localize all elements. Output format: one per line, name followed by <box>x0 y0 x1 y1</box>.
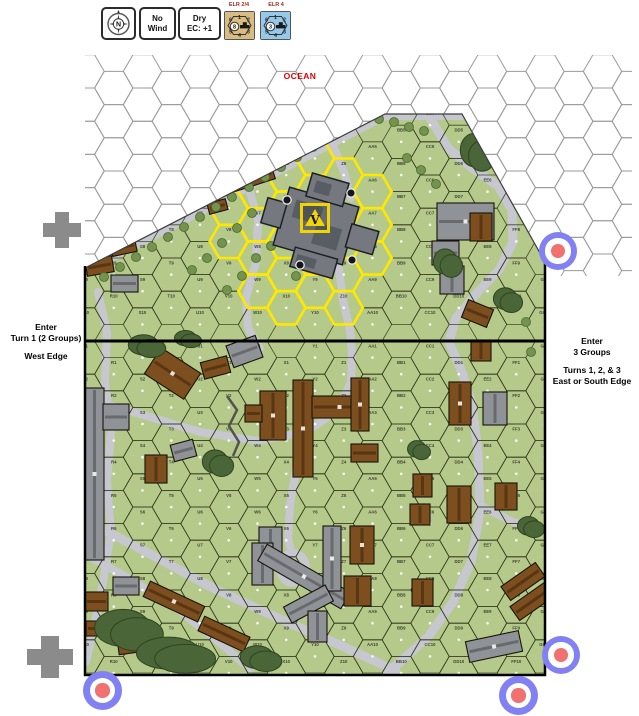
west-entry-line2: Turn 1 (2 Groups) <box>0 333 92 344</box>
cross-horizontal-bar <box>27 649 73 665</box>
orchard-tree <box>248 209 257 218</box>
allied-roundel-marker[interactable] <box>499 676 538 715</box>
elr-counter-allied[interactable]: 6125433 <box>260 11 291 40</box>
wooden-building <box>351 444 378 462</box>
orchard-tree <box>432 180 441 189</box>
hex-label: X9 <box>284 626 290 631</box>
gun-cupola <box>348 256 356 264</box>
hex-label: W8 <box>254 244 261 249</box>
hex-label: FF3 <box>512 426 520 431</box>
hex-label: EE9 <box>483 609 492 614</box>
hex-label: CC1 <box>426 343 435 348</box>
hex-label: DD10 <box>453 659 465 664</box>
hex-label: T5 <box>169 493 175 498</box>
svg-text:6: 6 <box>229 18 232 24</box>
hex-label: T8 <box>169 227 175 232</box>
hex-label: T9 <box>169 260 175 265</box>
hex-label: BB4 <box>397 460 406 465</box>
stone-building <box>113 577 139 595</box>
wooden-building <box>413 474 432 497</box>
german-cross-marker[interactable] <box>43 212 81 248</box>
hex-label: AA5 <box>368 476 377 481</box>
wooden-building <box>351 378 369 431</box>
hex-label: S10 <box>139 310 147 315</box>
hex-label: S6 <box>140 509 146 514</box>
hex-label: EE8 <box>483 244 492 249</box>
hex-label: U6 <box>197 509 203 514</box>
hex-label: BB7 <box>397 559 406 564</box>
svg-text:6: 6 <box>265 18 268 24</box>
hex-label: W6 <box>254 509 261 514</box>
hex-label: T9 <box>169 626 175 631</box>
svg-text:1: 1 <box>274 15 277 21</box>
hex-label: FF10 <box>511 659 522 664</box>
orchard-tree <box>223 286 232 295</box>
hex-label: X6 <box>284 526 290 531</box>
allied-roundel-marker[interactable] <box>539 232 577 270</box>
west-entry-instructions: Enter Turn 1 (2 Groups) West Edge <box>0 322 92 362</box>
hex-label: Z1 <box>341 360 347 365</box>
stone-building <box>308 611 327 642</box>
hex-label: X1 <box>284 360 290 365</box>
scenario-map-page: Q1Q2Q3Q4Q5Q6Q7Q8Q9Q10Q10Q9R1R2R3R4R5R6R7… <box>0 0 639 716</box>
hex-label: FF7 <box>512 559 520 564</box>
hex-label: CC10 <box>425 310 437 315</box>
compass-north-letter: N <box>116 22 121 29</box>
orchard-tree <box>292 272 301 281</box>
hex-label: EE8 <box>483 576 492 581</box>
environment-chit-line1: Dry <box>193 14 206 23</box>
wooden-building <box>293 380 313 477</box>
east-entry-line1: Enter <box>545 336 639 347</box>
hex-label: AA5 <box>368 144 377 149</box>
hex-label: U4 <box>197 443 203 448</box>
gun-cupola <box>347 189 355 197</box>
wooden-building <box>410 504 430 525</box>
svg-text:8: 8 <box>233 25 236 31</box>
hex-label: W10 <box>253 310 262 315</box>
hex-label: BB7 <box>397 194 406 199</box>
hex-label: CC2 <box>426 377 435 382</box>
victory-location-marker[interactable]: V <box>300 203 330 233</box>
roundel-center <box>95 683 109 697</box>
hex-label: CC9 <box>426 277 435 282</box>
hex-label: T6 <box>169 526 175 531</box>
hex-label: CC10 <box>425 642 437 647</box>
hex-label: FF1 <box>512 360 520 365</box>
hex-label: DD7 <box>454 559 463 564</box>
hex-label: Z6 <box>341 161 347 166</box>
hex-label: CC7 <box>426 543 435 548</box>
wooden-building <box>245 405 262 422</box>
wind-chit-line1: No <box>152 14 163 23</box>
hex-label: AA7 <box>368 211 377 216</box>
hex-label: EE2 <box>483 377 492 382</box>
hex-label: AA6 <box>368 509 377 514</box>
wooden-building <box>412 579 433 606</box>
svg-text:3: 3 <box>283 30 286 36</box>
hex-label: X8 <box>284 592 290 597</box>
hex-label: V9 <box>226 260 232 265</box>
orchard-tree <box>420 127 429 136</box>
orchard-tree <box>238 272 247 281</box>
orchard-tree <box>100 273 109 282</box>
hex-label: S4 <box>140 443 146 448</box>
hex-label: T4 <box>169 460 175 465</box>
west-entry-line1: Enter <box>0 322 92 333</box>
hex-label: Z3 <box>341 426 347 431</box>
west-entry-line3: West Edge <box>0 351 92 362</box>
hex-label: AA3 <box>368 410 377 415</box>
hex-label: Y6 <box>312 509 318 514</box>
hex-label: DD1 <box>454 360 463 365</box>
svg-text:2: 2 <box>283 18 286 24</box>
hex-label: R10 <box>110 659 118 664</box>
hex-label: Z7 <box>341 559 347 564</box>
hex-label: DD7 <box>454 194 463 199</box>
hex-label: R4 <box>111 460 117 465</box>
hex-label: Z10 <box>340 659 348 664</box>
hex-label: S3 <box>140 410 146 415</box>
svg-text:1: 1 <box>238 15 241 21</box>
orchard-tree <box>417 166 426 175</box>
orchard-tree <box>522 318 531 327</box>
orchard-tree <box>116 263 125 272</box>
hex-label: AA9 <box>368 609 377 614</box>
hex-label: Y1 <box>312 343 318 348</box>
hex-label: CC5 <box>426 144 435 149</box>
hex-label: FF4 <box>512 460 520 465</box>
hex-label: V5 <box>226 493 232 498</box>
hex-label: FF9 <box>512 260 520 265</box>
hex-label: S8 <box>140 244 146 249</box>
stone-building <box>111 275 138 292</box>
wooden-building <box>449 382 471 425</box>
svg-text:5: 5 <box>229 30 232 36</box>
hex-label: BB1 <box>397 360 406 365</box>
hex-label: S9 <box>140 609 146 614</box>
hex-label: R5 <box>111 493 117 498</box>
hex-label: FF8 <box>512 227 520 232</box>
hex-label: S9 <box>140 277 146 282</box>
environment-chit-line2: EC: +1 <box>187 24 212 33</box>
svg-text:5: 5 <box>265 30 268 36</box>
hex-label: W5 <box>254 476 261 481</box>
wooden-building <box>447 486 471 523</box>
roundel-center <box>551 244 565 258</box>
elr-label-axis: ELR 2/4 <box>222 2 256 8</box>
hex-label: AA10 <box>367 642 379 647</box>
wooden-building <box>344 576 371 606</box>
hex-label: U9 <box>197 277 203 282</box>
hex-label: U8 <box>197 244 203 249</box>
hex-label: Y10 <box>311 310 319 315</box>
roundel-center <box>511 688 525 702</box>
hex-label: Y7 <box>312 543 318 548</box>
orchard-tree <box>164 233 173 242</box>
svg-text:4: 4 <box>274 33 277 39</box>
hex-label: EE6 <box>483 509 492 514</box>
hex-label: Y10 <box>311 642 319 647</box>
hex-label: U5 <box>197 476 203 481</box>
stone-building <box>323 526 341 591</box>
hex-label: Z6 <box>341 526 347 531</box>
hex-label: S8 <box>140 576 146 581</box>
hex-label: V8 <box>226 592 232 597</box>
hex-label: T7 <box>169 559 175 564</box>
hex-label: BB2 <box>397 393 406 398</box>
orchard-tree <box>180 223 189 232</box>
hex-label: EE5 <box>483 476 492 481</box>
hex-label: W9 <box>254 277 261 282</box>
hex-label: EE4 <box>483 443 492 448</box>
orchard-tree <box>132 253 141 262</box>
hex-label: EE6 <box>483 177 492 182</box>
ocean-label: OCEAN <box>258 71 342 81</box>
roundel-middle-ring <box>90 678 116 704</box>
cross-horizontal-bar <box>43 223 81 237</box>
north-compass-chit[interactable]: N <box>101 7 136 40</box>
hex-label: FF2 <box>512 393 520 398</box>
hex-label: DD6 <box>454 526 463 531</box>
orchard-tree <box>196 213 205 222</box>
wind-chit-line2: Wind <box>148 24 167 33</box>
compass-rose-icon: N <box>103 9 134 38</box>
hex-label: EE9 <box>483 277 492 282</box>
gun-cupola <box>296 261 304 269</box>
hex-label: U10 <box>196 310 204 315</box>
hex-label: CC9 <box>426 609 435 614</box>
hex-label: T2 <box>169 393 175 398</box>
elr-counter-axis-face: 6125438 <box>225 12 254 39</box>
hex-label: CC7 <box>426 211 435 216</box>
hex-label: BB9 <box>397 626 406 631</box>
hex-label: DD8 <box>454 592 463 597</box>
hex-label: R2 <box>111 393 117 398</box>
wooden-building <box>495 483 517 510</box>
stone-building <box>103 404 129 430</box>
hex-label: U8 <box>197 576 203 581</box>
hex-label: W4 <box>254 443 261 448</box>
german-cross-marker[interactable] <box>27 636 73 678</box>
hex-label: V10 <box>225 659 233 664</box>
victory-letter: V <box>303 213 327 227</box>
hex-label: BB5 <box>397 493 406 498</box>
hex-label: Z9 <box>341 626 347 631</box>
orchard-tree <box>527 348 536 357</box>
wind-chit[interactable]: No Wind <box>139 7 176 40</box>
svg-text:3: 3 <box>269 25 272 31</box>
east-entry-line2: 3 Groups <box>545 347 639 358</box>
orchard-tree <box>309 143 318 152</box>
hex-label: AA2 <box>368 377 377 382</box>
hex-label: BB9 <box>397 260 406 265</box>
roundel-middle-ring <box>548 642 573 667</box>
hex-label: Z4 <box>341 460 347 465</box>
hex-label: V8 <box>226 227 232 232</box>
orchard-tree <box>390 118 399 127</box>
hex-label: R10 <box>110 294 118 299</box>
orchard-tree <box>203 254 212 263</box>
hex-label: AA9 <box>368 277 377 282</box>
gun-cupola <box>283 196 291 204</box>
elr-label-allied: ELR 4 <box>259 2 293 8</box>
hex-label: DD9 <box>454 626 463 631</box>
hex-label: S2 <box>140 377 146 382</box>
orchard-tree <box>403 154 412 163</box>
stone-building <box>85 388 104 560</box>
hex-label: X10 <box>282 294 290 299</box>
hex-label: DD4 <box>454 460 463 465</box>
wooden-building <box>145 455 167 483</box>
elr-counter-allied-face: 6125433 <box>261 12 290 39</box>
hex-label: CC3 <box>426 410 435 415</box>
wooden-building <box>202 186 221 201</box>
wooden-building <box>470 213 492 241</box>
hex-label: AA6 <box>368 177 377 182</box>
hex-label: Y9 <box>312 277 318 282</box>
hex-label: X9 <box>284 260 290 265</box>
hex-label: DD6 <box>454 161 463 166</box>
hex-label: T10 <box>168 294 176 299</box>
hex-label: Z10 <box>340 294 348 299</box>
orchard-tree <box>341 123 350 132</box>
hex-label: Z5 <box>341 128 347 133</box>
hex-label: EE7 <box>483 543 492 548</box>
stone-building <box>483 392 507 425</box>
east-entry-line3: Turns 1, 2, & 3 <box>545 365 639 376</box>
orchard-tree <box>252 254 261 263</box>
roundel-middle-ring <box>545 238 570 263</box>
hex-label: Z5 <box>341 493 347 498</box>
hex-label: U7 <box>197 543 203 548</box>
orchard-tree <box>218 239 227 248</box>
hex-label: V7 <box>226 559 232 564</box>
elr-counter-axis[interactable]: 6125438 <box>224 11 255 40</box>
hex-label: R6 <box>111 526 117 531</box>
svg-text:3: 3 <box>247 30 250 36</box>
wooden-building <box>260 391 286 440</box>
roundel-middle-ring <box>506 683 532 709</box>
hex-label: R1 <box>111 360 117 365</box>
hex-label: W9 <box>254 609 261 614</box>
svg-text:2: 2 <box>247 18 250 24</box>
hex-label: AA10 <box>367 310 379 315</box>
hex-label: S7 <box>140 543 146 548</box>
hex-label: DD3 <box>454 426 463 431</box>
hex-label: BB3 <box>397 426 406 431</box>
hex-label: T3 <box>169 426 175 431</box>
orchard-tree <box>233 224 242 233</box>
hex-label: X5 <box>284 493 290 498</box>
hex-label: BB6 <box>397 526 406 531</box>
hex-label: W2 <box>254 377 261 382</box>
east-entry-instructions: Enter 3 Groups Turns 1, 2, & 3 East or S… <box>545 336 639 387</box>
allied-roundel-marker[interactable] <box>542 636 580 674</box>
orchard-tree <box>148 243 157 252</box>
wooden-building <box>350 526 374 564</box>
svg-text:4: 4 <box>238 33 241 39</box>
orchard-tree <box>188 266 197 275</box>
hex-label: BB8 <box>397 227 406 232</box>
hex-label: BB8 <box>397 592 406 597</box>
allied-roundel-marker[interactable] <box>83 671 122 710</box>
wooden-building <box>85 592 108 611</box>
hex-label: BB10 <box>396 659 408 664</box>
hex-label: BB10 <box>396 294 408 299</box>
hex-label: X10 <box>282 659 290 664</box>
orchard-tree <box>405 123 414 132</box>
hex-label: U3 <box>197 410 203 415</box>
east-entry-line4: East or South Edge <box>545 376 639 387</box>
hex-label: X4 <box>284 460 290 465</box>
game-map: Q1Q2Q3Q4Q5Q6Q7Q8Q9Q10Q10Q9R1R2R3R4R5R6R7… <box>0 0 639 716</box>
hex-label: R7 <box>111 559 117 564</box>
orchard-tree <box>212 203 221 212</box>
environment-chit[interactable]: Dry EC: +1 <box>178 7 221 40</box>
hex-label: DD5 <box>454 128 463 133</box>
hex-label: AA1 <box>368 343 377 348</box>
roundel-center <box>554 648 568 662</box>
hex-label: V6 <box>226 526 232 531</box>
hex-label: FF9 <box>512 626 520 631</box>
wooden-building <box>471 340 491 361</box>
